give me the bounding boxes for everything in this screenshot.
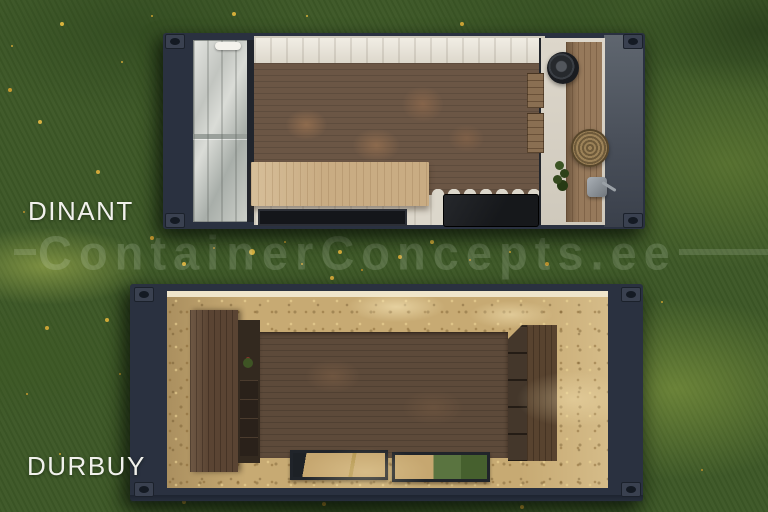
durbuy-wood-floor <box>258 332 508 458</box>
durbuy-niche-drawers <box>240 380 258 456</box>
watermark: ContainerConcepts.ee <box>0 224 768 280</box>
durbuy-kitchen-cabinet <box>508 325 557 461</box>
dinant-shelf-unit <box>527 113 544 153</box>
corner-casting <box>623 213 643 228</box>
dinant-washing-machine <box>547 52 579 84</box>
durbuy-wall-top-edge <box>167 291 608 297</box>
corner-casting <box>134 287 154 302</box>
dinant-shelf-unit <box>527 73 544 108</box>
label-dinant: DINANT <box>28 196 134 227</box>
durbuy-shelf-niche <box>238 320 260 463</box>
corner-casting <box>165 34 185 49</box>
corner-casting <box>165 213 185 228</box>
watermark-dash-left <box>14 249 36 255</box>
dinant-plant <box>551 157 571 195</box>
dinant-woven-basket <box>571 129 609 167</box>
dinant-kitchen-island <box>251 162 429 206</box>
dinant-door-handle <box>215 42 241 50</box>
watermark-dash-right <box>679 249 768 255</box>
dinant-cooktop <box>258 209 407 226</box>
dinant-corrugated-wall-top <box>254 38 545 63</box>
label-durbuy: DURBUY <box>27 451 146 482</box>
corner-casting <box>623 34 643 49</box>
corner-casting <box>621 287 641 302</box>
garden-scene: ContainerConcepts.ee <box>0 0 768 512</box>
durbuy-wardrobe <box>190 310 238 472</box>
dinant-shower-tray <box>443 194 539 227</box>
container-dinant <box>163 33 645 229</box>
dinant-end-wall <box>604 35 643 227</box>
dinant-watering-can <box>587 177 607 197</box>
dinant-glass-doors <box>193 40 248 222</box>
watermark-text: ContainerConcepts.ee <box>38 224 677 280</box>
durbuy-base-shadow <box>130 495 643 503</box>
corner-casting <box>621 482 641 497</box>
durbuy-window <box>290 450 388 480</box>
container-durbuy <box>130 284 643 501</box>
durbuy-plant-pot <box>243 358 253 368</box>
durbuy-window <box>392 452 490 482</box>
corner-casting <box>134 482 154 497</box>
